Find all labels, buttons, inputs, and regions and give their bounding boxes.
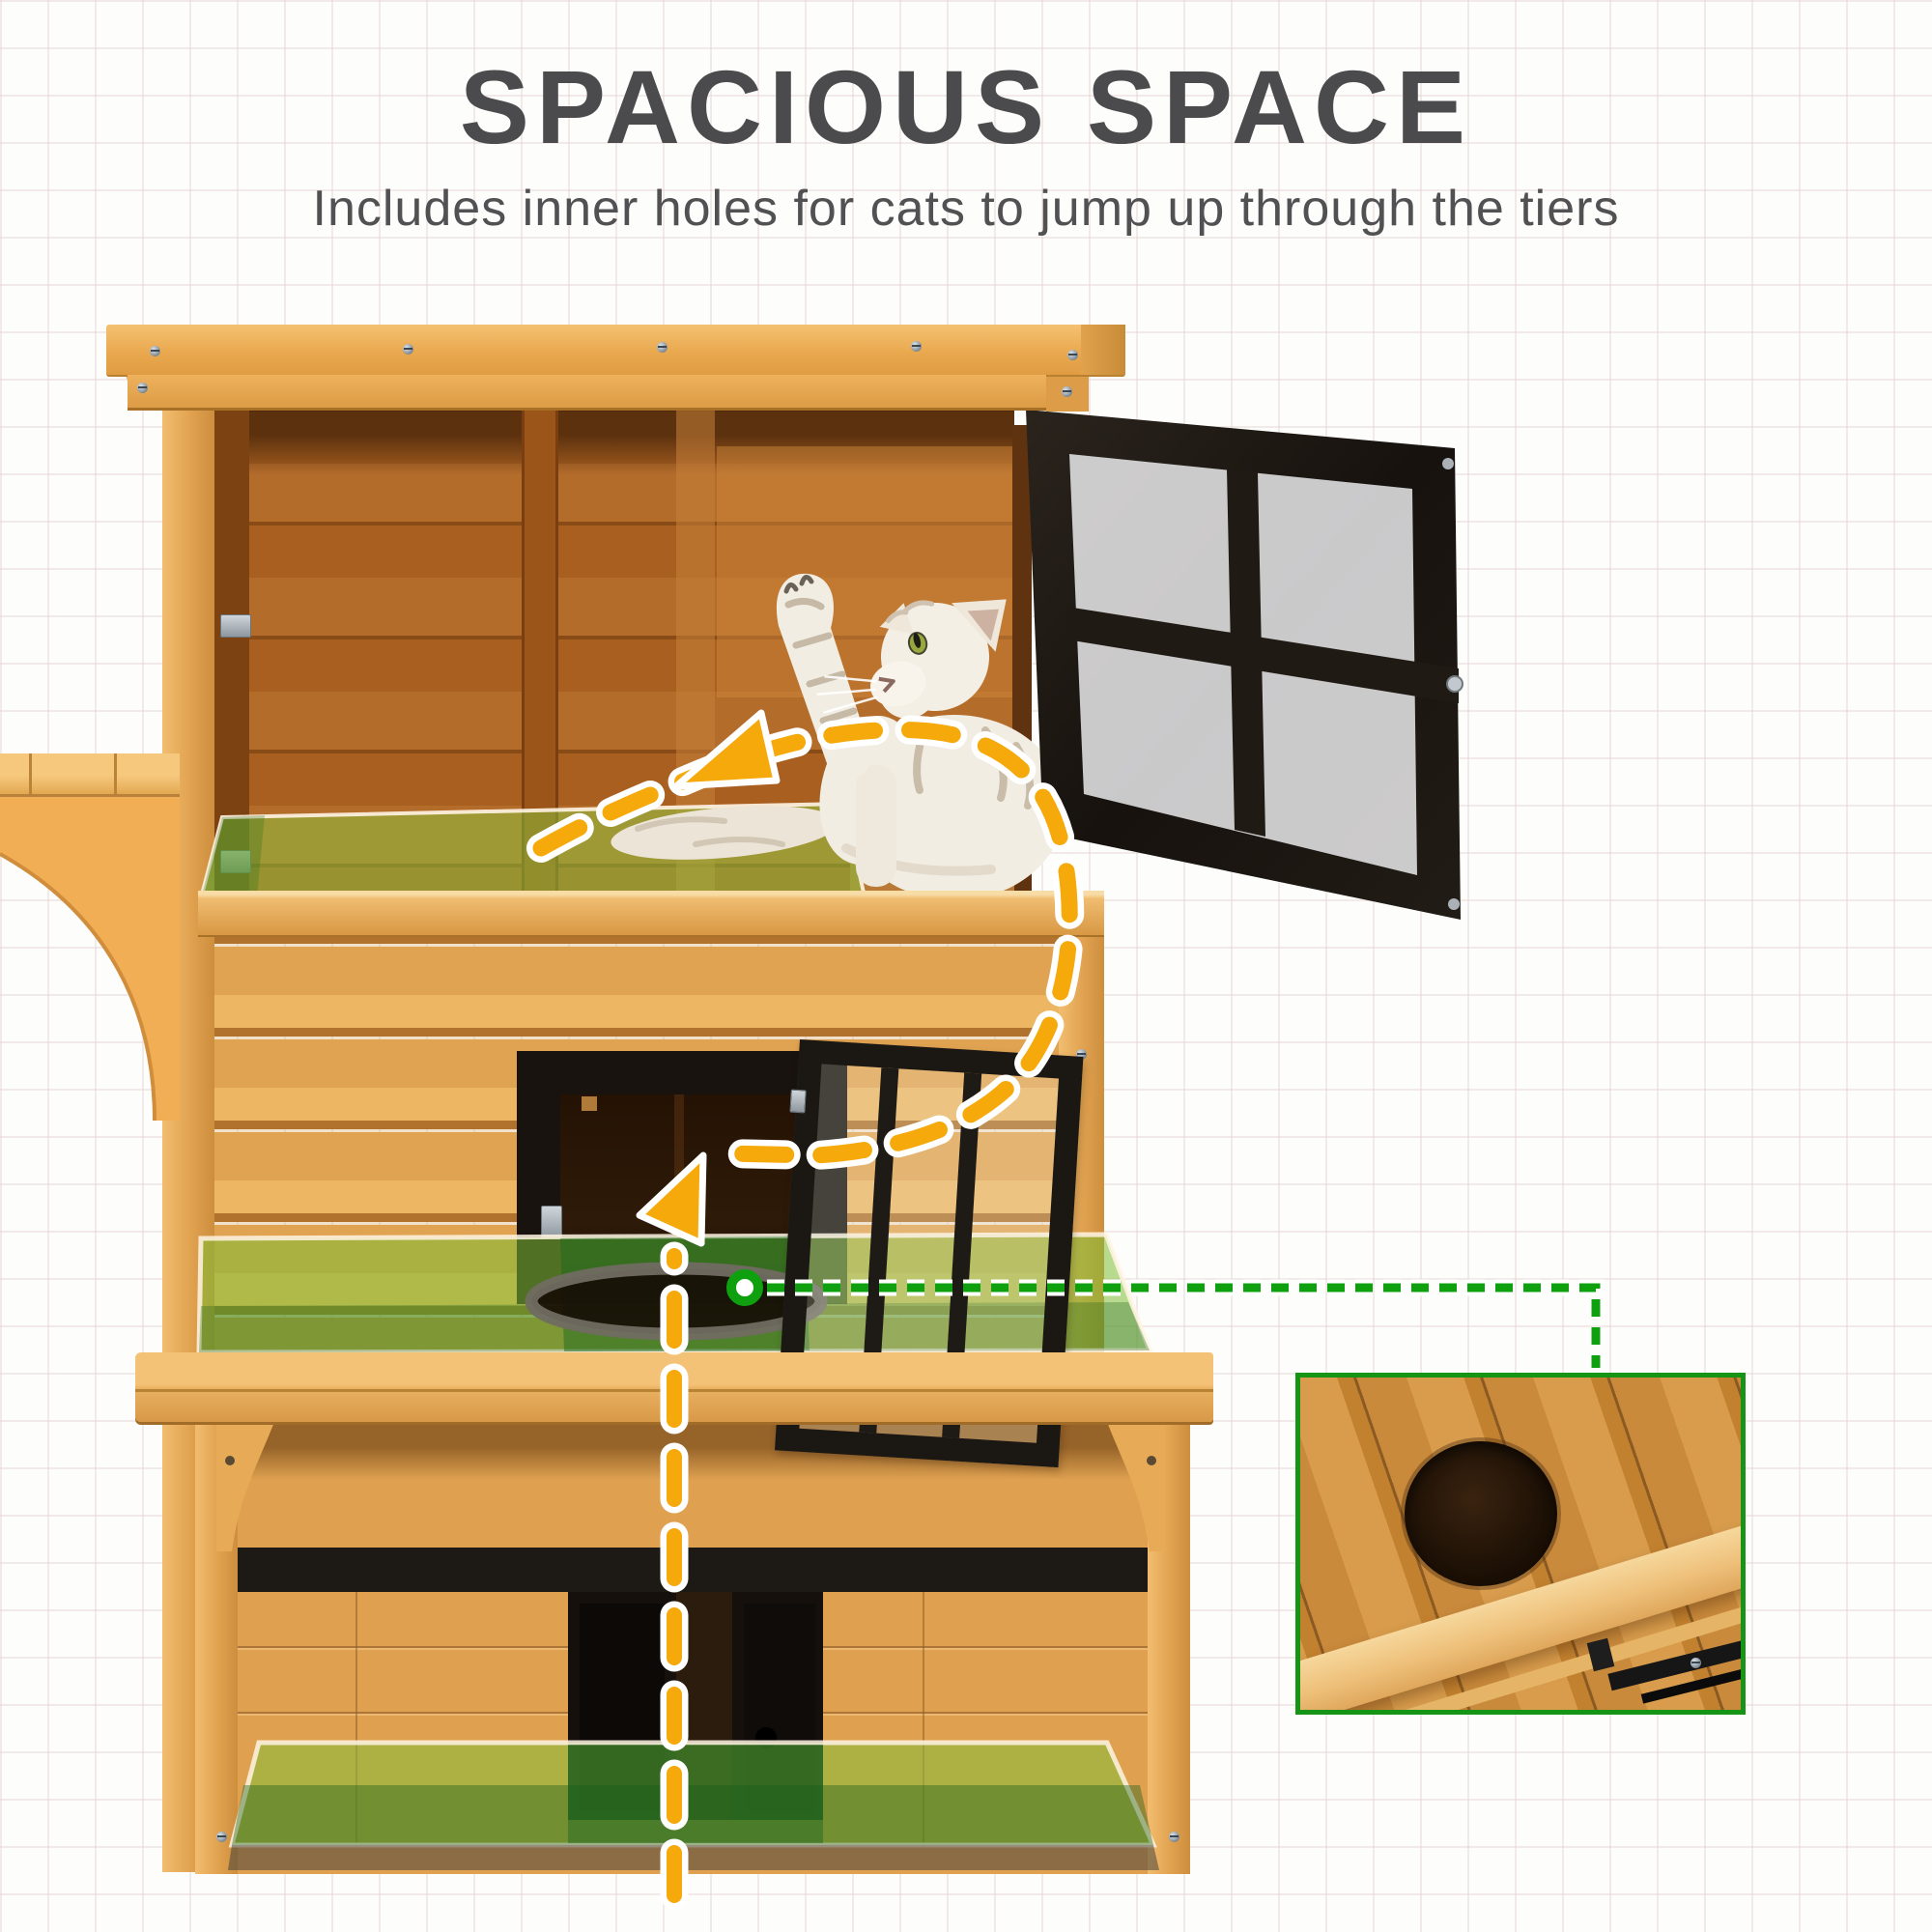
bottom-black-door [568, 1592, 823, 1820]
roof-fascia [128, 375, 1046, 408]
left-shelf-bracket [0, 794, 180, 1122]
top-tier-right-jamb [1012, 425, 1032, 894]
roof [106, 325, 1125, 377]
interior-stud [522, 408, 558, 894]
door-hinge [220, 850, 251, 873]
door-hinge [220, 614, 251, 638]
hole-closeup-inset [1295, 1373, 1746, 1715]
top-tier-floor-wood [850, 805, 1014, 894]
inset-hole [1405, 1441, 1557, 1586]
roof-end-cap [1081, 325, 1125, 375]
page-subtitle: Includes inner holes for cats to jump up… [0, 180, 1932, 238]
product-feature-image: SPACIOUS SPACE Includes inner holes for … [0, 0, 1932, 1932]
bottom-left-post [195, 1422, 238, 1874]
inner-doorway-opening [560, 1094, 805, 1304]
page-title: SPACIOUS SPACE [0, 46, 1932, 167]
roof-support-right [1046, 375, 1089, 412]
tier3-floor-front-board [198, 891, 1104, 935]
bottom-black-stripe [238, 1548, 1148, 1592]
interior-left-jamb [214, 408, 249, 894]
interior-light-panel [717, 446, 1014, 697]
small-door-pin [789, 1090, 806, 1114]
inner-wood-block [582, 1096, 597, 1111]
bottom-right-post [1148, 1422, 1190, 1874]
window-pane [1069, 454, 1417, 875]
inner-stud-shadow [674, 1094, 684, 1304]
window-knob [1447, 676, 1463, 692]
doorway-latch [541, 1206, 562, 1238]
door-hole [755, 1727, 777, 1748]
interior-stud [676, 408, 715, 894]
bottom-tier [195, 1422, 1190, 1874]
left-shelf [0, 753, 180, 794]
middle-shelf-board [135, 1352, 1213, 1422]
